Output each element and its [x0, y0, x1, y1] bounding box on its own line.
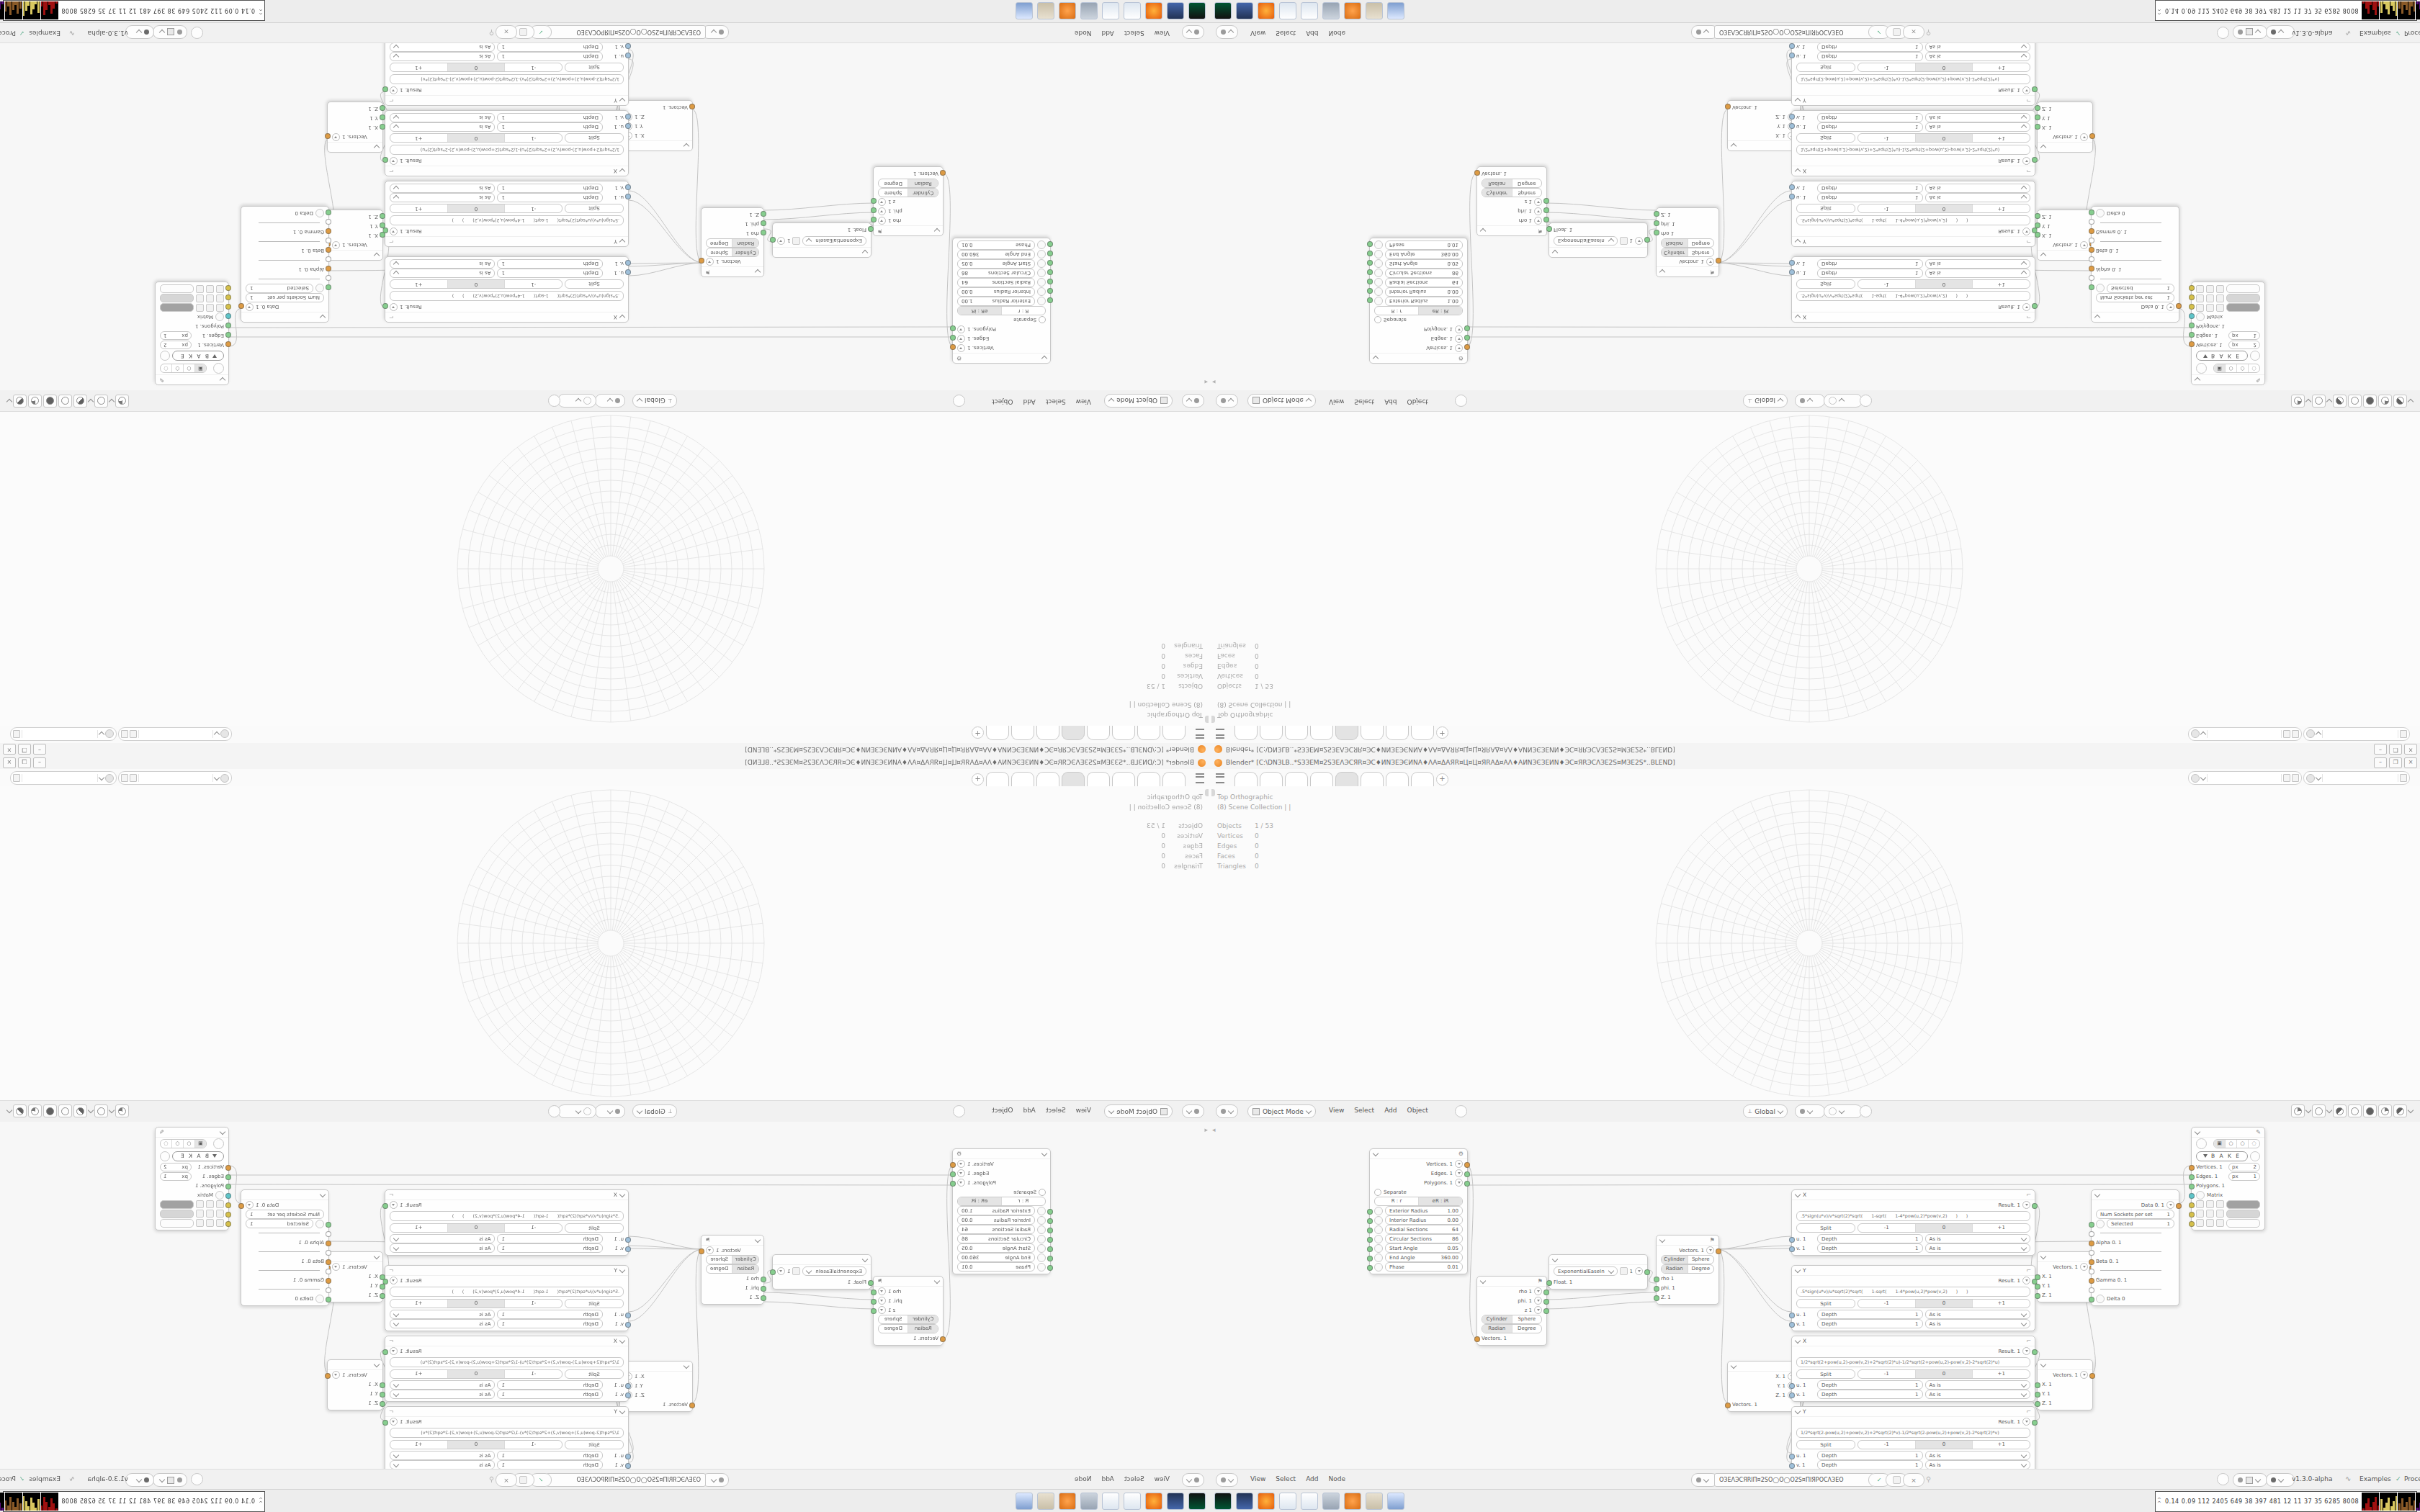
notepad-icon[interactable] [1102, 2, 1119, 19]
draw-mode-button[interactable] [125, 25, 154, 39]
notepad-icon[interactable] [1279, 1493, 1296, 1510]
split-button[interactable]: Split [565, 279, 624, 289]
formula-expression-field[interactable]: .5*sign(u*v)/v*sqrt(2)*sqrt( 1-sqrt( 1-4… [1796, 1211, 2030, 1221]
node-vector-in-a[interactable]: Vectors. 1X. 1Y. 1Z. 1 [2037, 210, 2093, 261]
menu-hamburger-icon[interactable] [1196, 729, 1204, 739]
menu-object[interactable]: Object [992, 398, 1013, 405]
workspace-tab[interactable] [1361, 772, 1384, 786]
split-button[interactable]: Split [565, 133, 624, 143]
socket[interactable] [382, 1203, 388, 1209]
restore-button[interactable]: ❐ [18, 757, 31, 768]
scene-name-field[interactable] [138, 774, 213, 782]
socket[interactable] [1789, 124, 1795, 130]
shading-rendered-button[interactable] [13, 395, 27, 408]
socket[interactable] [2089, 210, 2094, 216]
slider-option-icon[interactable] [1374, 279, 1383, 287]
socket[interactable] [950, 1181, 956, 1187]
menu-object[interactable]: Object [992, 1107, 1013, 1114]
depth-field[interactable]: Depth1 [498, 113, 604, 122]
number-field[interactable]: Start Angle0.05 [1385, 1243, 1463, 1253]
gizmo-dropdown[interactable] [115, 395, 129, 408]
socket[interactable] [871, 1308, 877, 1314]
socket-menu-icon[interactable] [2022, 1347, 2030, 1355]
speaker-icon[interactable] [1037, 1493, 1054, 1510]
bake-options-icon[interactable] [160, 351, 170, 361]
split-button[interactable]: Split [1796, 279, 1855, 289]
depth-field[interactable]: Depth1 [498, 184, 604, 193]
swatch-option-icon[interactable] [2196, 1219, 2204, 1227]
socket-menu-icon[interactable] [1706, 258, 1714, 266]
formula-expression-field[interactable]: 1/2*sqrt(2-pow(u,2)+pow(v,2)+2*sqrt(2)*v… [1796, 1428, 2030, 1438]
view-layer-selector[interactable] [2303, 771, 2410, 785]
menu-add[interactable]: Add [1306, 1475, 1318, 1482]
workspace-tab[interactable] [986, 772, 1009, 786]
socket[interactable] [2189, 286, 2195, 292]
transform-orientation[interactable]: ⟂Global [632, 1104, 677, 1118]
slider-option-icon[interactable] [1037, 1216, 1046, 1225]
socket[interactable] [761, 1286, 766, 1292]
wrap-mode-select[interactable]: As is [390, 1460, 496, 1469]
socket[interactable] [950, 336, 956, 341]
socket[interactable] [225, 1174, 231, 1180]
wrap-mode-select[interactable]: As is [1925, 122, 2031, 132]
notepad-icon[interactable] [1124, 2, 1141, 19]
menu-add[interactable]: Add [1384, 1107, 1397, 1114]
menu-view[interactable]: View [1076, 1107, 1091, 1114]
depth-field[interactable]: Depth1 [498, 43, 604, 52]
easing-mode-select[interactable]: ExponentialEaseIn [802, 236, 866, 246]
node-vector-in-b[interactable]: Vectors. 1X. 1Y. 1Z. 1 [2037, 1359, 2093, 1410]
node-tree-name-field[interactable]: ОЗЕΛЭСЯRIΠ¤2SO◯O◯O2S¤ΠIЯPOCΛЗEO [546, 1473, 706, 1487]
collapse-icon[interactable] [1795, 1266, 1801, 1272]
node-vector-in-b[interactable]: Vectors. 1X. 1Y. 1Z. 1 [2037, 102, 2093, 153]
xray-toggle[interactable] [2333, 395, 2347, 408]
socket-option-icon[interactable] [2096, 210, 2105, 218]
menu-select[interactable]: Select [1276, 30, 1296, 37]
collapse-icon[interactable] [320, 315, 326, 320]
node-editor[interactable]: ◂ ⚙Vertices. 1Edges. 1Polygons. 1Separat… [1210, 1122, 2420, 1469]
split-button[interactable]: Split [565, 63, 624, 72]
node-formula-y1[interactable]: Y⌐Result. 1.5*sign(u*v)/u*sqrt(2)*sqrt( … [385, 181, 629, 247]
slider-option-icon[interactable] [1037, 1207, 1046, 1215]
segmented-toggle[interactable]: CylinderSphere [1482, 1315, 1542, 1324]
number-field[interactable]: Interior Radius0.00 [1385, 287, 1463, 297]
offset-segmented[interactable]: -10+1 [390, 1223, 563, 1233]
socket-menu-icon[interactable] [706, 1246, 714, 1254]
node-vector-polar-input[interactable]: ⚑Vectors. 1CylinderSphereRadianDegreerho… [1656, 1235, 1719, 1305]
socket-menu-icon[interactable] [390, 1201, 398, 1209]
depth-field[interactable]: Depth1 [498, 259, 604, 269]
socket[interactable] [2089, 257, 2094, 263]
socket-menu-icon[interactable] [1534, 207, 1542, 215]
socket[interactable] [2189, 1174, 2195, 1180]
socket[interactable] [2035, 233, 2040, 238]
up-arrows-icon[interactable]: ^^ [259, 7, 263, 14]
socket-option-icon[interactable] [2196, 1191, 2205, 1200]
menu-node[interactable]: Node [1075, 1475, 1092, 1482]
firefox-icon[interactable] [1258, 2, 1275, 19]
socket-option-icon[interactable] [2196, 313, 2205, 322]
viewport-3d[interactable]: Top Orthographic (8) Scene Collection | … [0, 412, 1210, 726]
collapse-icon[interactable] [862, 250, 868, 256]
view-layer-selector[interactable] [2303, 727, 2410, 741]
color-swatch[interactable] [2226, 294, 2260, 303]
node-vector-in-b[interactable]: Vectors. 1X. 1Y. 1Z. 1 [327, 102, 383, 153]
node-vector-in-a[interactable]: Vectors. 1X. 1Y. 1Z. 1 [327, 1251, 383, 1302]
collapse-icon[interactable] [2094, 1191, 2100, 1197]
depth-field[interactable]: Depth1 [498, 52, 604, 61]
workspace-tab[interactable] [1260, 772, 1283, 786]
socket[interactable] [1546, 1280, 1552, 1286]
wrap-mode-select[interactable]: As is [1925, 1243, 2031, 1253]
processing-check-icon[interactable]: ✓ [2396, 30, 2401, 37]
socket-menu-icon[interactable] [332, 133, 340, 141]
offset-segmented[interactable]: -10+1 [390, 204, 563, 213]
workspace-tab[interactable] [1285, 772, 1308, 786]
socket[interactable] [871, 199, 877, 204]
number-field[interactable]: Start Angle0.05 [957, 259, 1035, 269]
socket[interactable] [382, 158, 388, 163]
collapse-icon[interactable] [684, 143, 689, 149]
viewport-3d[interactable]: Top Orthographic (8) Scene Collection | … [0, 786, 1210, 1100]
menu-node[interactable]: Node [1329, 1475, 1346, 1482]
socket[interactable] [1543, 1290, 1549, 1295]
depth-field[interactable]: Depth1 [1817, 1243, 1923, 1253]
socket[interactable] [1654, 1286, 1659, 1292]
wrap-mode-select[interactable]: As is [1925, 1451, 2031, 1460]
slider-option-icon[interactable] [315, 284, 324, 293]
depth-field[interactable]: Depth1 [1817, 1390, 1923, 1399]
socket[interactable] [380, 1293, 385, 1299]
add-workspace-button[interactable]: + [1436, 726, 1448, 739]
floppy-64-icon[interactable] [1236, 1493, 1253, 1510]
firefox-icon[interactable] [1145, 1493, 1162, 1510]
wrap-mode-select[interactable]: As is [390, 122, 496, 132]
socket[interactable] [1367, 1237, 1373, 1243]
node-vector-polar-input[interactable]: ⚑Vectors. 1CylinderSphereRadianDegreerho… [701, 207, 764, 277]
number-field[interactable]: Selected1 [246, 284, 313, 293]
depth-field[interactable]: Depth1 [1817, 1460, 1923, 1469]
socket-menu-icon[interactable] [2080, 1371, 2088, 1379]
workspace-tab[interactable] [1062, 772, 1085, 786]
pin-icon[interactable] [130, 730, 137, 738]
socket[interactable] [2189, 1202, 2195, 1208]
swatch-option-icon[interactable] [216, 294, 224, 302]
socket[interactable] [2189, 1165, 2195, 1171]
proportional-edit[interactable] [557, 394, 596, 408]
socket-menu-icon[interactable] [2166, 303, 2174, 311]
socket[interactable] [2189, 342, 2195, 348]
collapse-icon[interactable] [1373, 1150, 1379, 1156]
gizmo-dropdown[interactable] [2291, 1104, 2305, 1117]
socket-menu-icon[interactable] [390, 303, 398, 311]
split-button[interactable]: Split [1796, 204, 1855, 213]
socket[interactable] [2189, 295, 2195, 301]
workspace-tab[interactable] [1087, 772, 1110, 786]
wrap-mode-select[interactable]: As is [1925, 193, 2031, 202]
collapse-icon[interactable] [619, 1337, 625, 1343]
socket[interactable] [625, 1463, 631, 1469]
node-vector-polar-input[interactable]: ⚑Vectors. 1CylinderSphereRadianDegreerho… [701, 1235, 764, 1305]
unlink-tree-button[interactable]: × [496, 1473, 517, 1487]
view-layer-name-field[interactable] [22, 730, 98, 738]
socket-menu-icon[interactable] [957, 344, 965, 352]
node-data-mix[interactable]: Data 0. 1Num Sockets per set1Selected1Al… [2091, 206, 2179, 323]
wrap-mode-select[interactable]: As is [390, 52, 496, 61]
offset-segmented[interactable]: -10+1 [390, 1440, 563, 1449]
color-swatch[interactable] [2226, 1210, 2260, 1218]
offset-segmented[interactable]: -10+1 [390, 279, 563, 289]
minimize-button[interactable]: – [2374, 744, 2387, 755]
socket[interactable] [1654, 1295, 1659, 1301]
collapse-icon[interactable] [934, 228, 940, 234]
socket-menu-icon[interactable] [777, 1267, 785, 1275]
slider-option-icon[interactable] [1374, 241, 1383, 250]
swatch-option-icon[interactable] [196, 294, 204, 302]
split-button[interactable]: Split [1796, 1223, 1855, 1233]
workspace-tab[interactable] [1036, 726, 1059, 740]
depth-field[interactable]: Depth1 [498, 1319, 604, 1328]
depth-field[interactable]: Depth1 [498, 1310, 604, 1319]
mode-selector[interactable]: Object Mode [1247, 1104, 1316, 1118]
menu-select[interactable]: Select [1046, 398, 1066, 405]
workspace-tab[interactable] [1162, 726, 1186, 740]
collapse-icon[interactable] [684, 1362, 689, 1368]
menu-object[interactable]: Object [1407, 1107, 1428, 1114]
depth-field[interactable]: Depth1 [498, 193, 604, 202]
formula-expression-field[interactable]: .5*sign(u*v)/u*sqrt(2)*sqrt( 1-sqrt( 1-4… [1796, 216, 2030, 226]
px-field[interactable]: px2 [2228, 1163, 2260, 1171]
depth-field[interactable]: Depth1 [1817, 1234, 1923, 1243]
collapse-icon[interactable] [374, 253, 380, 258]
formula-expression-field[interactable]: 1/2*sqrt(2-pow(u,2)+pow(v,2)+2*sqrt(2)*v… [1796, 75, 2030, 85]
number-field[interactable]: Exterior Radius1.00 [957, 1206, 1035, 1215]
workspace-tab[interactable] [1234, 772, 1258, 786]
tool-circle-button[interactable] [953, 395, 965, 407]
swatch-option-icon[interactable] [206, 1210, 214, 1218]
menu-select[interactable]: Select [1124, 30, 1144, 37]
socket[interactable] [1047, 1237, 1053, 1243]
offset-segmented[interactable]: -10+1 [1857, 1223, 2030, 1233]
segmented-toggle[interactable]: RadianDegree [1661, 1264, 1714, 1274]
socket[interactable] [225, 1221, 231, 1227]
checkbox[interactable] [1039, 1189, 1046, 1196]
node-viewer-draw[interactable]: ✎▣○○◌ B A K EVertices. 1px2Edges. 1px1Po… [2191, 282, 2265, 385]
socket[interactable] [950, 326, 956, 332]
swatch-option-icon[interactable] [2216, 1219, 2224, 1227]
viewport-3d[interactable]: Top Orthographic (8) Scene Collection | … [1210, 412, 2420, 726]
swatch-option-icon[interactable] [206, 1200, 214, 1208]
swatch-option-icon[interactable] [216, 1200, 224, 1208]
socket[interactable] [1474, 171, 1480, 176]
depth-field[interactable]: Depth1 [498, 1243, 604, 1253]
socket[interactable] [2089, 238, 2094, 244]
add-workspace-button[interactable]: + [972, 726, 984, 739]
unlink-tree-button[interactable]: × [1903, 25, 1924, 39]
wrap-mode-select[interactable]: As is [1925, 113, 2031, 122]
socket[interactable] [2089, 266, 2094, 272]
notepad-icon[interactable] [1301, 2, 1318, 19]
formula-expression-field[interactable]: .5*sign(u*v)/u*sqrt(2)*sqrt( 1-sqrt( 1-4… [390, 216, 624, 226]
socket-option-icon[interactable] [2096, 1295, 2105, 1303]
slider-option-icon[interactable] [1374, 251, 1383, 259]
slider-option-icon[interactable] [1037, 279, 1046, 287]
split-button[interactable]: Split [1796, 1299, 1855, 1308]
socket[interactable] [2035, 1392, 2040, 1398]
depth-field[interactable]: Depth1 [1817, 52, 1923, 61]
socket[interactable] [1789, 1313, 1795, 1318]
workspace-tab[interactable] [986, 726, 1009, 740]
checkbox[interactable] [1374, 317, 1381, 324]
socket-menu-icon[interactable] [390, 228, 398, 235]
split-button[interactable]: Split [565, 1299, 624, 1308]
editor-type-selector[interactable] [1182, 25, 1204, 39]
display-toggle-group[interactable]: ▣○○◌ [2213, 364, 2260, 373]
collapse-icon[interactable] [320, 1191, 326, 1197]
menu-view[interactable]: View [1250, 1475, 1265, 1482]
slider-option-icon[interactable] [1037, 241, 1046, 250]
socket-menu-icon[interactable] [390, 86, 398, 94]
close-button[interactable]: × [3, 744, 16, 755]
workspace-tab[interactable] [1036, 772, 1059, 786]
depth-field[interactable]: Depth1 [1817, 259, 1923, 269]
collapse-icon[interactable] [1041, 356, 1047, 361]
split-button[interactable]: Split [565, 1440, 624, 1449]
new-view-layer-icon[interactable] [2400, 774, 2407, 782]
new-scene-icon[interactable] [121, 730, 128, 738]
workspace-tab[interactable] [1411, 772, 1434, 786]
number-field[interactable]: Exterior Radius1.00 [957, 297, 1035, 306]
node-formula-x2[interactable]: X⌐Result. 11/2*sqrt(2+pow(u,2)-pow(v,2)+… [385, 110, 629, 176]
wrap-mode-select[interactable]: As is [390, 1390, 496, 1399]
wrap-mode-select[interactable]: As is [390, 1319, 496, 1328]
slider-option-icon[interactable] [1374, 1254, 1383, 1262]
overlays-dropdown[interactable] [94, 1104, 108, 1117]
collapse-icon[interactable] [2040, 1361, 2046, 1367]
menu-add[interactable]: Add [1023, 398, 1035, 405]
close-button[interactable]: × [2404, 744, 2417, 755]
collapse-icon[interactable] [755, 1236, 761, 1242]
extra-tool-button[interactable] [1860, 395, 1872, 407]
node-editor[interactable]: ◂ ⚙Vertices. 1Edges. 1Polygons. 1Separat… [0, 1122, 1210, 1469]
window-title-bar[interactable]: Blender* [C:\DNЗLB..*SЗЗEM¤2SЗЕΛЭCЯR¤ЭC♦… [0, 742, 1210, 756]
socket[interactable] [2189, 305, 2195, 310]
socket[interactable] [325, 1373, 331, 1379]
notepad-icon[interactable] [1102, 1493, 1119, 1510]
node-easing[interactable]: ExponentialEaseIn1Float. 1 [772, 1254, 871, 1290]
speaker-icon[interactable] [1366, 1493, 1383, 1510]
socket[interactable] [871, 208, 877, 214]
socket[interactable] [625, 1246, 631, 1252]
scene-selector[interactable] [118, 727, 232, 741]
segmented-toggle[interactable]: CylinderSphere [706, 1255, 759, 1264]
close-button[interactable]: × [3, 757, 16, 768]
shading-wireframe-button[interactable] [2348, 395, 2362, 408]
extra-tool-button[interactable] [548, 1105, 560, 1117]
node-formula-y2[interactable]: Y⌐Result. 11/2*sqrt(2-pow(u,2)+pow(v,2)+… [385, 43, 629, 106]
number-field[interactable]: End Angle360.00 [1385, 1253, 1463, 1262]
number-field[interactable]: Exterior Radius1.00 [1385, 1206, 1463, 1215]
wrap-mode-select[interactable]: As is [1925, 1234, 2031, 1243]
node-formula-x1[interactable]: X⌐Result. 1.5*sign(u*v)/v*sqrt(2)*sqrt( … [385, 256, 629, 323]
restore-button[interactable]: ❐ [18, 744, 31, 755]
window-title-bar[interactable]: Blender* [C:\DNЗLB..*SЗЗEM¤2SЗЕΛЭCЯR¤ЭC♦… [0, 756, 1210, 770]
collapse-icon[interactable] [1041, 1150, 1047, 1156]
socket[interactable] [699, 258, 704, 264]
node-formula-y1[interactable]: Y⌐Result. 1.5*sign(u*v)/u*sqrt(2)*sqrt( … [1791, 1265, 2035, 1331]
socket[interactable] [1644, 1269, 1650, 1275]
editor-type-selector[interactable] [1216, 1104, 1238, 1118]
socket-menu-icon[interactable] [2022, 157, 2030, 165]
offset-segmented[interactable]: -10+1 [1857, 279, 2030, 289]
overlays-dropdown[interactable] [94, 395, 108, 408]
formula-expression-field[interactable]: 1/2*sqrt(2+pow(u,2)-pow(v,2)+2*sqrt(2)*u… [390, 145, 624, 156]
shading-wireframe-button[interactable] [2348, 1104, 2362, 1117]
socket[interactable] [950, 1162, 956, 1168]
slider-option-icon[interactable] [1374, 1244, 1383, 1253]
swatch-option-icon[interactable] [2206, 1200, 2214, 1208]
socket[interactable] [2089, 1231, 2094, 1237]
node-formula-y1[interactable]: Y⌐Result. 1.5*sign(u*v)/u*sqrt(2)*sqrt( … [1791, 181, 2035, 247]
socket-menu-icon[interactable] [1455, 325, 1463, 333]
socket[interactable] [1789, 114, 1795, 120]
collapse-icon[interactable] [1731, 1362, 1736, 1368]
segmented-toggle[interactable]: RadianDegree [1482, 1324, 1542, 1333]
formula-expression-field[interactable]: 1/2*sqrt(2+pow(u,2)-pow(v,2)+2*sqrt(2)*u… [390, 1357, 624, 1367]
examples-menu[interactable]: Examples [2359, 30, 2391, 37]
tool-circle-button[interactable] [953, 1105, 965, 1117]
workspace-tab[interactable] [1087, 726, 1110, 740]
segmented-toggle[interactable]: CylinderSphere [1661, 248, 1714, 257]
wrap-mode-select[interactable]: As is [390, 1243, 496, 1253]
close-button[interactable]: × [2404, 757, 2417, 768]
pin-icon[interactable]: ⚲ [489, 1475, 494, 1483]
wrap-mode-select[interactable]: As is [1925, 184, 2031, 193]
menu-select[interactable]: Select [1124, 1475, 1144, 1482]
socket[interactable] [2189, 1193, 2195, 1199]
collapse-icon[interactable] [619, 315, 625, 320]
window-title-bar[interactable]: Blender* [C:\DNЗLB..*SЗЗEM¤2SЗЕΛЭCЯR¤ЭC♦… [1210, 742, 2420, 756]
socket[interactable] [2032, 1349, 2038, 1355]
socket-menu-icon[interactable] [332, 241, 340, 249]
pin-icon[interactable]: ⚲ [1926, 1475, 1931, 1483]
socket[interactable] [1464, 1181, 1470, 1187]
split-button[interactable]: Split [1796, 1440, 1855, 1449]
add-workspace-button[interactable]: + [1436, 773, 1448, 786]
processing-toggle-label[interactable]: Processing [0, 30, 16, 37]
xray-toggle[interactable] [2333, 1104, 2347, 1117]
slider-option-icon[interactable] [1037, 1263, 1046, 1272]
socket[interactable] [1367, 1265, 1373, 1271]
socket[interactable] [1716, 1248, 1721, 1254]
add-workspace-button[interactable]: + [972, 773, 984, 786]
layout-grid-button[interactable] [2233, 25, 2267, 39]
new-scene-icon[interactable] [2292, 730, 2299, 738]
socket-menu-icon[interactable] [2080, 1263, 2088, 1271]
segmented-toggle[interactable]: RadianDegree [706, 1264, 759, 1274]
px-field[interactable]: px2 [160, 341, 192, 350]
wrap-mode-select[interactable]: As is [1925, 1380, 2031, 1390]
swatch-option-icon[interactable] [216, 1210, 224, 1218]
slider-option-icon[interactable] [1037, 288, 1046, 297]
collapse-icon[interactable] [2195, 1128, 2200, 1134]
unlink-tree-button[interactable]: × [496, 25, 517, 39]
menu-add[interactable]: Add [1101, 1475, 1113, 1482]
color-swatch[interactable] [2226, 285, 2260, 294]
workspace-tab[interactable] [1335, 772, 1358, 786]
node-torus[interactable]: ⚙Vertices. 1Edges. 1Polygons. 1SeparateR… [952, 238, 1051, 364]
easing-mode-select[interactable]: ExponentialEaseIn [1554, 1266, 1618, 1276]
